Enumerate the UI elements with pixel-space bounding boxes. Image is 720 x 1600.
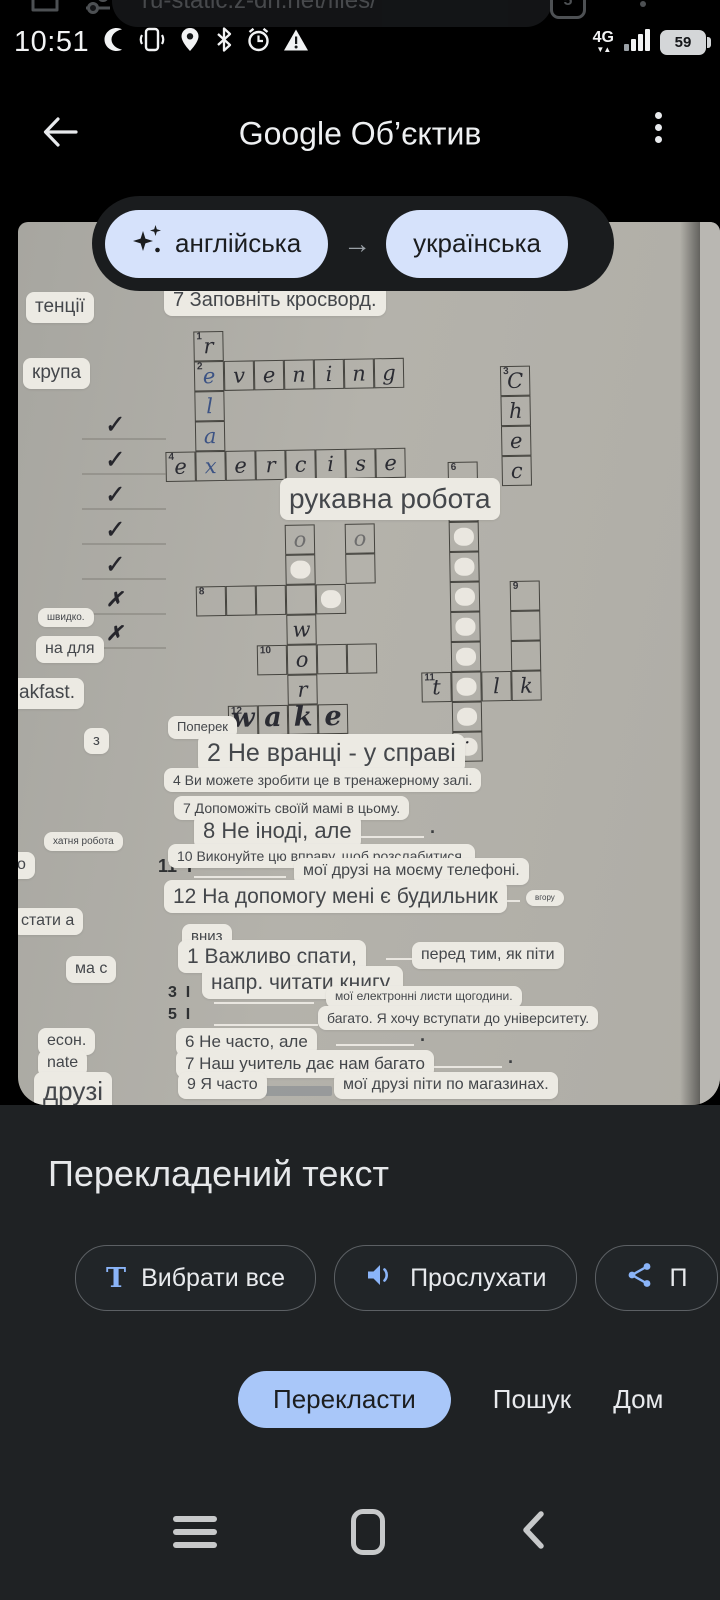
battery-icon: 59 [660, 30, 706, 55]
blank-line [82, 578, 166, 580]
translated-text-chip[interactable]: тенції [26, 292, 94, 323]
translated-text-chip[interactable]: швидко. [38, 608, 94, 627]
clock: 10:51 [14, 26, 89, 59]
translated-text-chip[interactable]: мої друзі піти по магазинах. [334, 1072, 558, 1099]
listen-button[interactable]: Прослухати [334, 1245, 577, 1311]
source-language-pill[interactable]: англійська [105, 210, 328, 278]
sheet-heading: Перекладений текст [48, 1153, 389, 1195]
share-icon [626, 1261, 654, 1296]
nav-recents-icon[interactable] [173, 1516, 217, 1548]
handwriting-mark: ✓ [102, 481, 124, 509]
language-bar: англійська → українська [92, 196, 614, 291]
blank-line [82, 473, 166, 475]
handwriting-mark: ✓ [102, 446, 124, 474]
translated-text-chip[interactable]: стати а [18, 908, 83, 935]
translated-overlay: 11 I3 I5 I✓✓✓✓✓✗✗ϑ– ·тенціїкрупашвидко.н… [18, 222, 720, 1105]
translated-text-chip[interactable]: 4 Ви можете зробити це в тренажерному за… [164, 768, 481, 792]
blank-line [352, 836, 424, 838]
tab-count[interactable]: 5 [550, 0, 586, 19]
vibrate-icon [137, 26, 167, 58]
select-text-icon: T [106, 1265, 126, 1292]
browser-menu-icon[interactable] [640, 0, 646, 7]
location-icon [177, 26, 203, 58]
target-language-pill[interactable]: українська [386, 210, 568, 278]
blank-line [214, 1024, 318, 1026]
blank-line [82, 508, 166, 510]
blank-line [82, 613, 166, 615]
worksheet-text: 5 I [168, 1006, 190, 1024]
signal-icon [622, 27, 652, 58]
translated-text-chip[interactable]: хатня робота [44, 832, 123, 851]
translated-text-chip[interactable]: 12 На допомогу мені є будильник [164, 880, 507, 913]
moon-icon [101, 26, 127, 58]
blank-line [214, 1002, 314, 1004]
listen-icon [365, 1261, 395, 1296]
url-text: ru-static.z-dn.net/files/ [142, 0, 377, 15]
tab-search[interactable]: Пошук [493, 1384, 571, 1415]
back-icon[interactable] [38, 110, 82, 159]
handwriting-mark: ✓ [102, 516, 124, 544]
translated-text-chip[interactable]: о [18, 852, 35, 879]
target-language-label: українська [413, 228, 541, 259]
translated-text-chip[interactable]: ма с [66, 956, 116, 983]
status-bar: 10:51 4G▼▲ [0, 22, 720, 62]
translated-text-chip[interactable]: мої електронні листи щогодини. [326, 986, 522, 1008]
action-buttons: T Вибрати все Прослухати П [75, 1245, 720, 1311]
translated-text-chip[interactable]: на для [36, 636, 104, 663]
lens-image-preview[interactable]: 1r2elavening4exercise3Checoo8w10or12wake… [18, 222, 720, 1105]
blank-line [82, 543, 166, 545]
translated-text-chip[interactable]: вгору [526, 890, 564, 906]
select-all-button[interactable]: T Вибрати все [75, 1245, 316, 1311]
phone-screen: ru-static.z-dn.net/files/ 5 10:51 [0, 0, 720, 1600]
share-button[interactable]: П [595, 1245, 718, 1311]
page-title: Google Об’єктив [239, 116, 482, 153]
handwriting-mark: ✓ [102, 551, 124, 579]
network-type: 4G▼▲ [593, 30, 614, 54]
blank-line [336, 1044, 414, 1046]
sparkle-icon [132, 223, 164, 264]
warning-icon [282, 27, 310, 58]
blank-line [194, 876, 286, 878]
translated-text-chip[interactable]: друзі [34, 1072, 112, 1105]
overflow-menu-icon[interactable] [655, 112, 662, 143]
blank-line [422, 1066, 502, 1068]
handwriting-mark: ✗ [106, 621, 123, 645]
translated-text-chip[interactable]: з [84, 728, 109, 754]
translated-text-chip[interactable]: багато. Я хочу вступати до університету. [318, 1006, 598, 1030]
home-icon[interactable] [28, 0, 62, 20]
translated-text-chip[interactable]: 9 Я часто [178, 1072, 267, 1099]
handwriting-mark: ✗ [106, 587, 123, 611]
nav-back-icon[interactable] [519, 1508, 547, 1557]
translated-text-chip[interactable]: akfast. [18, 678, 84, 709]
tab-homework[interactable]: Дом [613, 1384, 663, 1415]
translated-text-chip[interactable]: рукавна робота [280, 478, 500, 520]
bluetooth-icon [213, 26, 235, 58]
lens-header: Google Об’єктив [0, 92, 720, 176]
handwriting-mark: ✓ [102, 411, 124, 439]
system-nav-bar [0, 1492, 720, 1572]
translated-text-chip[interactable]: перед тим, як піти [412, 942, 564, 969]
tune-icon[interactable] [84, 0, 112, 20]
mode-tabs: Перекласти Пошук Дом [238, 1371, 720, 1428]
nav-home-icon[interactable] [351, 1509, 385, 1555]
blank-line [82, 438, 166, 440]
source-language-label: англійська [175, 228, 301, 259]
translated-text-chip[interactable]: крупа [23, 358, 90, 389]
alarm-icon [245, 26, 272, 58]
translated-text-chip[interactable]: 2 Не вранці - у справі [198, 734, 465, 773]
arrow-icon: → [343, 228, 371, 260]
worksheet-text: 3 I [168, 984, 190, 1002]
tab-translate[interactable]: Перекласти [238, 1371, 451, 1428]
